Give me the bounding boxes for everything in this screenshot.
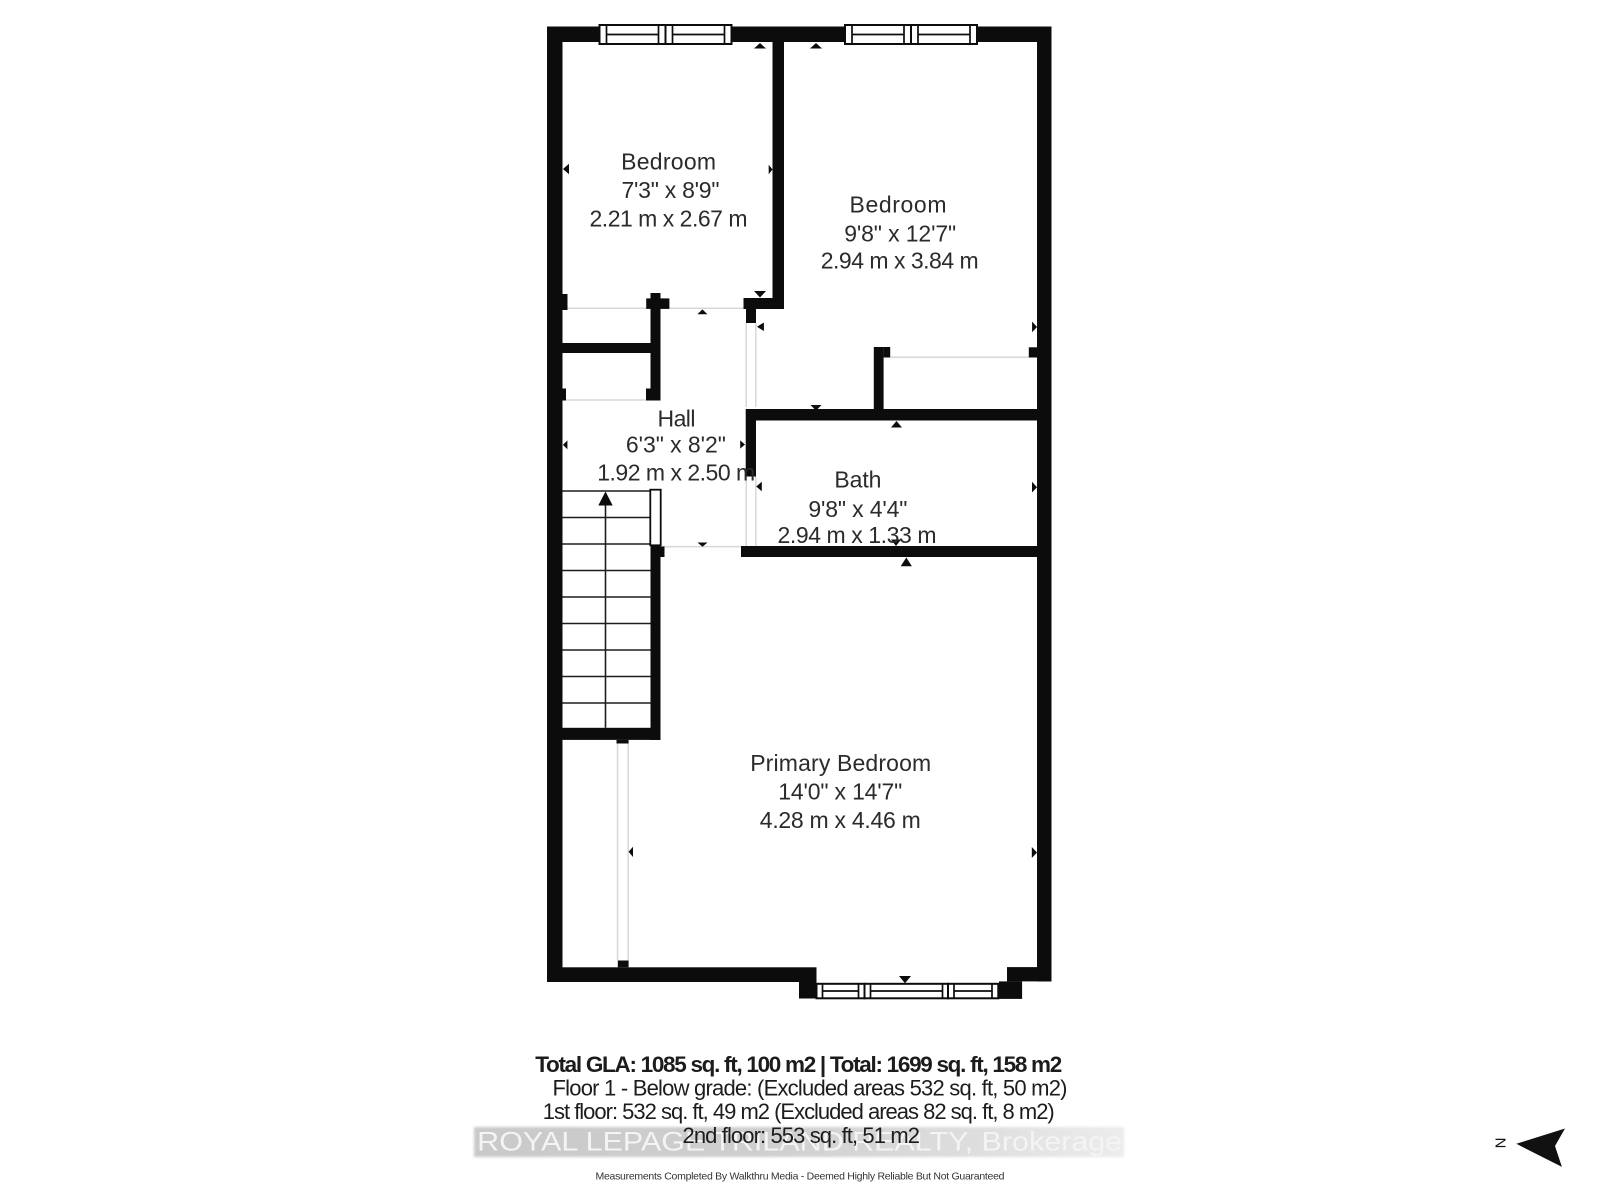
svg-text:Bedroom: Bedroom [850, 192, 947, 218]
svg-text:14'0" x 14'7": 14'0" x 14'7" [778, 779, 902, 805]
svg-text:2.21 m x 2.67 m: 2.21 m x 2.67 m [590, 206, 748, 232]
svg-text:1.92 m x 2.50 m: 1.92 m x 2.50 m [597, 460, 755, 486]
svg-text:6'3" x 8'2": 6'3" x 8'2" [626, 432, 726, 458]
svg-text:Primary Bedroom: Primary Bedroom [750, 750, 931, 776]
svg-text:Total GLA: 1085 sq. ft, 100 m2: Total GLA: 1085 sq. ft, 100 m2 | Total: … [535, 1052, 1062, 1077]
svg-text:9'8" x 4'4": 9'8" x 4'4" [808, 496, 907, 522]
svg-text:2nd floor: 553 sq. ft, 51 m2: 2nd floor: 553 sq. ft, 51 m2 [683, 1123, 921, 1148]
svg-text:1st floor: 532 sq. ft, 49 m2 (: 1st floor: 532 sq. ft, 49 m2 (Excluded a… [543, 1099, 1055, 1124]
svg-text:2.94 m x 3.84 m: 2.94 m x 3.84 m [821, 248, 979, 274]
svg-text:4.28 m x 4.46 m: 4.28 m x 4.46 m [760, 807, 921, 833]
svg-text:9'8" x 12'7": 9'8" x 12'7" [844, 221, 956, 247]
svg-text:Measurements Completed By Walk: Measurements Completed By Walkthru Media… [596, 1171, 1005, 1183]
svg-text:Bedroom: Bedroom [621, 149, 716, 175]
svg-text:N: N [1493, 1138, 1510, 1149]
svg-text:Hall: Hall [658, 406, 696, 432]
svg-text:Bath: Bath [834, 467, 881, 493]
svg-text:2.94 m x 1.33 m: 2.94 m x 1.33 m [778, 522, 937, 548]
svg-text:Floor 1 - Below grade: (Exclud: Floor 1 - Below grade: (Excluded areas 5… [553, 1076, 1068, 1101]
svg-text:7'3" x 8'9": 7'3" x 8'9" [622, 177, 720, 203]
